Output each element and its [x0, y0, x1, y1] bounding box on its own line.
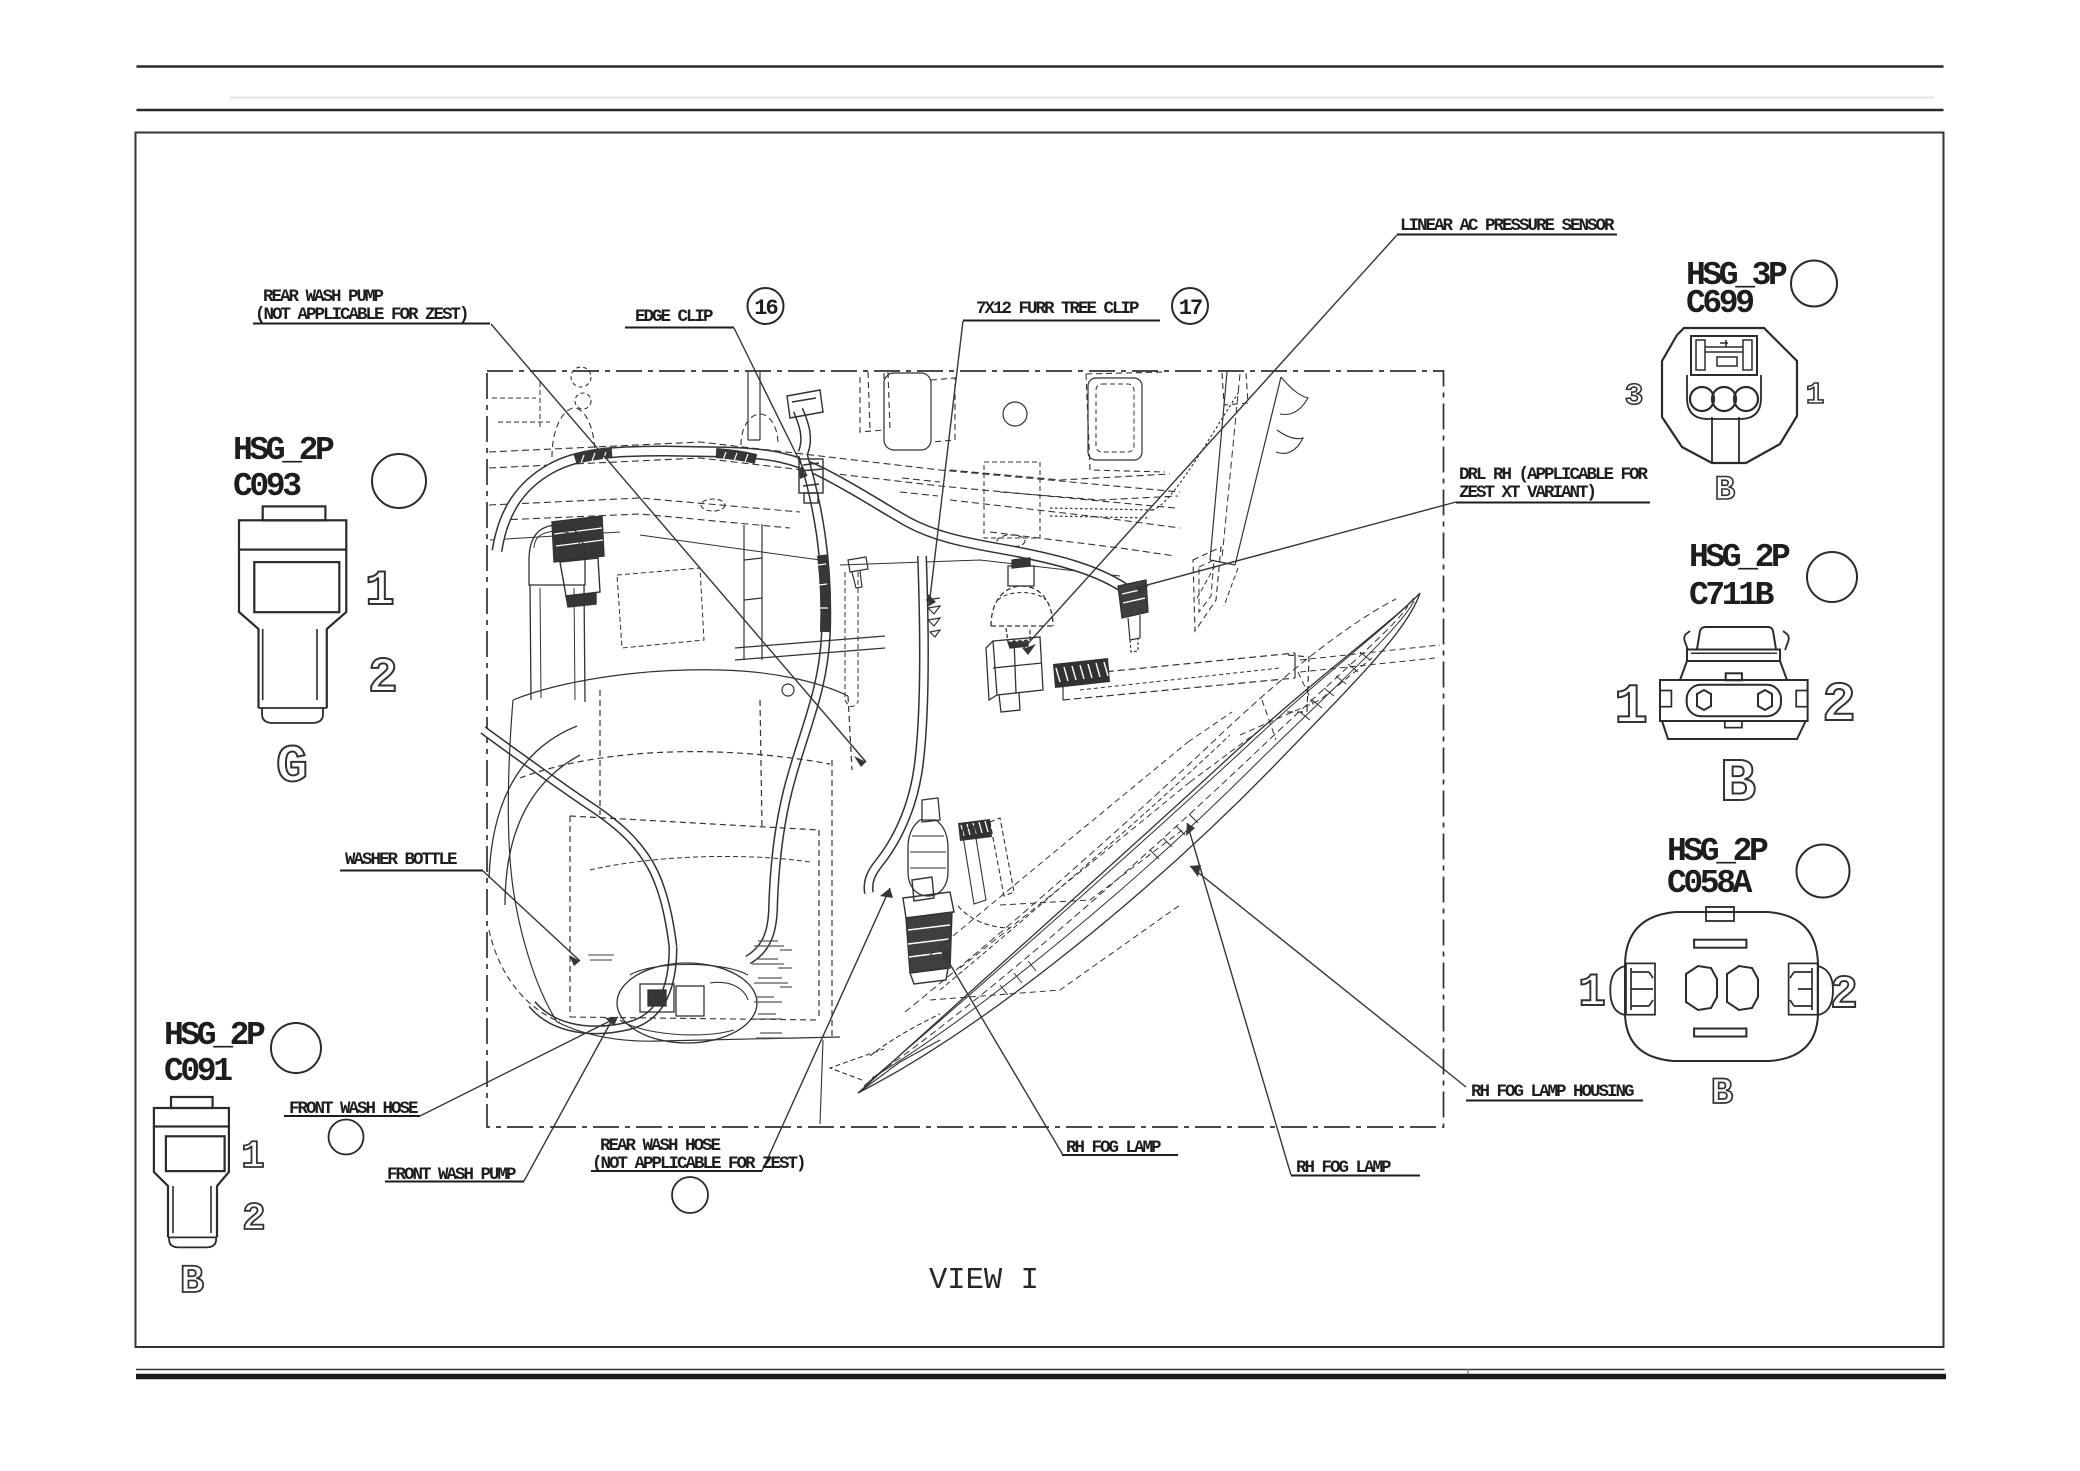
svg-text:1: 1 — [1614, 675, 1648, 739]
svg-text:DRL RH (APPLICABLE FOR: DRL RH (APPLICABLE FOR — [1459, 465, 1649, 485]
svg-text:G: G — [276, 737, 308, 797]
svg-text:B: B — [1715, 472, 1735, 510]
svg-text:1: 1 — [365, 563, 394, 619]
svg-text:B: B — [180, 1260, 204, 1305]
svg-text:1: 1 — [1806, 378, 1825, 413]
svg-text:2: 2 — [1830, 969, 1858, 1021]
svg-text:LINEAR AC PRESSURE SENSOR: LINEAR AC PRESSURE SENSOR — [1400, 216, 1615, 236]
svg-text:EDGE CLIP: EDGE CLIP — [635, 307, 713, 327]
svg-text:7X12 FURR TREE CLIP: 7X12 FURR TREE CLIP — [976, 299, 1139, 319]
svg-text:1: 1 — [241, 1135, 264, 1179]
svg-text:C093: C093 — [233, 468, 301, 505]
svg-text:B: B — [1711, 1073, 1733, 1115]
svg-text:16: 16 — [754, 296, 777, 321]
svg-text:REAR WASH HOSE: REAR WASH HOSE — [600, 1136, 721, 1156]
svg-text:HSG_2P: HSG_2P — [1689, 539, 1790, 576]
svg-text:2: 2 — [1822, 673, 1856, 737]
svg-text:RH FOG LAMP HOUSING: RH FOG LAMP HOUSING — [1471, 1082, 1634, 1102]
svg-text:17: 17 — [1179, 296, 1202, 321]
svg-text:2: 2 — [242, 1197, 265, 1241]
svg-text:ZEST XT VARIANT): ZEST XT VARIANT) — [1459, 483, 1595, 503]
svg-text:HSG_2P: HSG_2P — [233, 432, 334, 469]
svg-text:B: B — [1720, 751, 1756, 819]
svg-text:HSG_2P: HSG_2P — [164, 1017, 265, 1054]
svg-text:REAR WASH PUMP: REAR WASH PUMP — [263, 287, 384, 307]
svg-text:C058A: C058A — [1667, 865, 1753, 902]
svg-text:3: 3 — [1625, 379, 1644, 414]
svg-text:WASHER BOTTLE: WASHER BOTTLE — [345, 850, 457, 870]
svg-text:1: 1 — [1578, 967, 1606, 1019]
svg-text:2: 2 — [368, 650, 397, 706]
svg-text:VIEW I: VIEW I — [929, 1264, 1039, 1298]
svg-text:C711B: C711B — [1689, 577, 1775, 614]
svg-text:C699: C699 — [1686, 285, 1753, 322]
svg-text:(NOT APPLICABLE FOR ZEST): (NOT APPLICABLE FOR ZEST) — [255, 305, 468, 325]
svg-text:C091: C091 — [164, 1053, 232, 1090]
